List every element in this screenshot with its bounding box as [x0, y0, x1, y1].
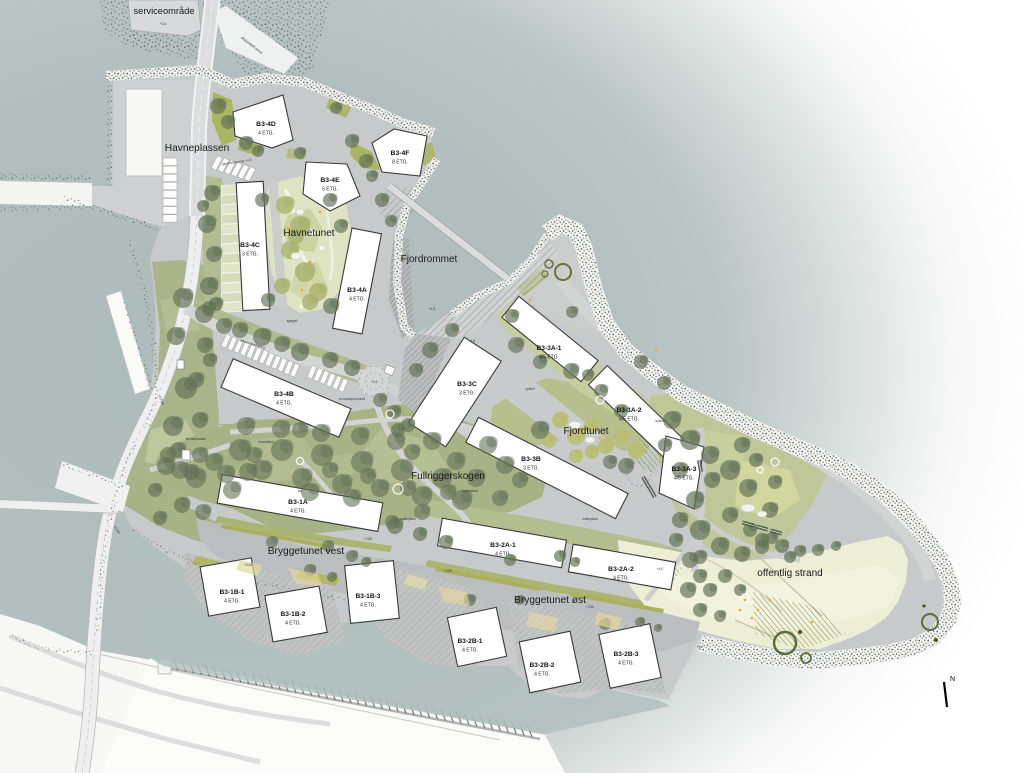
svg-text:4/5 ETG.: 4/5 ETG. [619, 417, 639, 423]
svg-text:4 ETG.: 4 ETG. [224, 599, 240, 605]
svg-text:+4,80: +4,80 [364, 537, 373, 541]
svg-text:+4,80: +4,80 [444, 569, 453, 573]
svg-text:+4,8: +4,8 [469, 339, 476, 343]
svg-text:4 ETG.: 4 ETG. [360, 603, 376, 609]
svg-text:B3-4D: B3-4D [256, 121, 276, 128]
svg-text:serviceområde: serviceområde [134, 6, 195, 16]
svg-text:Bryggetunet vest: Bryggetunet vest [268, 546, 345, 557]
svg-text:4 ETG.: 4 ETG. [276, 401, 292, 407]
svg-text:B3-4C: B3-4C [240, 242, 260, 249]
svg-text:4 ETG.: 4 ETG. [495, 552, 511, 558]
svg-text:4 ETG.: 4 ETG. [349, 297, 365, 303]
svg-text:lek: lek [298, 489, 303, 493]
svg-text:N: N [950, 676, 955, 683]
svg-text:Fjordrommet: Fjordrommet [401, 254, 458, 265]
svg-text:B3-4F: B3-4F [391, 150, 410, 157]
svg-text:B3-3A-2: B3-3A-2 [617, 407, 642, 414]
svg-text:4 ETG.: 4 ETG. [258, 131, 274, 137]
svg-text:4 ETG.: 4 ETG. [618, 661, 634, 667]
svg-text:+4,5: +4,5 [429, 307, 436, 311]
svg-text:kvartalslek: kvartalslek [258, 440, 274, 444]
svg-text:B3-3A-1: B3-3A-1 [537, 345, 562, 352]
svg-text:B3-2B-2: B3-2B-2 [530, 662, 555, 669]
svg-text:B3-1A: B3-1A [288, 499, 308, 506]
svg-text:+3,80: +3,80 [586, 605, 595, 609]
svg-text:sjøppel: sjøppel [287, 319, 298, 323]
svg-text:8 ETG.: 8 ETG. [392, 160, 408, 166]
svg-text:Fjordtunet: Fjordtunet [563, 426, 608, 437]
svg-text:B3-2B-3: B3-2B-3 [614, 651, 639, 658]
svg-text:Fullriggerskogen: Fullriggerskogen [411, 471, 485, 482]
svg-text:+4,0: +4,0 [657, 567, 664, 571]
svg-text:Bryggetunet øst: Bryggetunet øst [514, 595, 586, 606]
svg-text:offentlig strand: offentlig strand [757, 568, 822, 579]
svg-text:B3-4E: B3-4E [320, 177, 340, 184]
svg-text:B3-1B-1: B3-1B-1 [220, 589, 245, 596]
svg-text:Havneplassen: Havneplassen [165, 143, 230, 154]
svg-text:renovasjonspunkt: renovasjonspunkt [339, 397, 365, 401]
svg-text:+4,0: +4,0 [697, 645, 704, 649]
svg-text:B3-3C: B3-3C [457, 381, 477, 388]
svg-text:+4,5: +4,5 [371, 380, 378, 384]
svg-text:B3-1B-3: B3-1B-3 [356, 593, 381, 600]
svg-text:B3-1B-2: B3-1B-2 [281, 611, 306, 618]
svg-text:5 ETG.: 5 ETG. [322, 187, 338, 193]
svg-text:kvartalslek: kvartalslek [462, 489, 478, 493]
svg-text:3 ETG.: 3 ETG. [523, 466, 539, 472]
svg-text:møteplass: møteplass [400, 517, 416, 521]
svg-text:B3-3A-3: B3-3A-3 [672, 466, 697, 473]
svg-text:3 ETG.: 3 ETG. [459, 391, 475, 397]
svg-text:3 ETG.: 3 ETG. [242, 252, 258, 258]
svg-text:4 ETG.: 4 ETG. [462, 648, 478, 654]
svg-text:4 ETG.: 4 ETG. [534, 672, 550, 678]
svg-text:møteplass: møteplass [582, 517, 598, 521]
svg-text:4/5 ETG.: 4/5 ETG. [539, 355, 559, 361]
svg-text:B3-4B: B3-4B [274, 391, 294, 398]
svg-text:sykkel: sykkel [525, 387, 534, 391]
svg-text:B3-2A-2: B3-2A-2 [608, 566, 634, 573]
svg-text:B3-4A: B3-4A [347, 287, 367, 294]
svg-text:4 ETG.: 4 ETG. [613, 576, 629, 582]
svg-text:B3-2B-1: B3-2B-1 [458, 638, 483, 645]
svg-text:sykkel: sykkel [655, 419, 664, 423]
svg-text:B3-3B: B3-3B [521, 456, 541, 463]
svg-text:4 ETG.: 4 ETG. [285, 621, 301, 627]
svg-text:lek/akebakker: lek/akebakker [186, 437, 207, 441]
svg-text:+2,6: +2,6 [160, 22, 167, 26]
svg-text:4/5 ETG.: 4/5 ETG. [674, 476, 694, 482]
svg-text:+3,45: +3,45 [244, 563, 253, 567]
svg-text:4 ETG.: 4 ETG. [290, 509, 306, 515]
svg-text:Havnetunet: Havnetunet [283, 228, 334, 239]
svg-text:B3-2A-1: B3-2A-1 [490, 542, 516, 549]
